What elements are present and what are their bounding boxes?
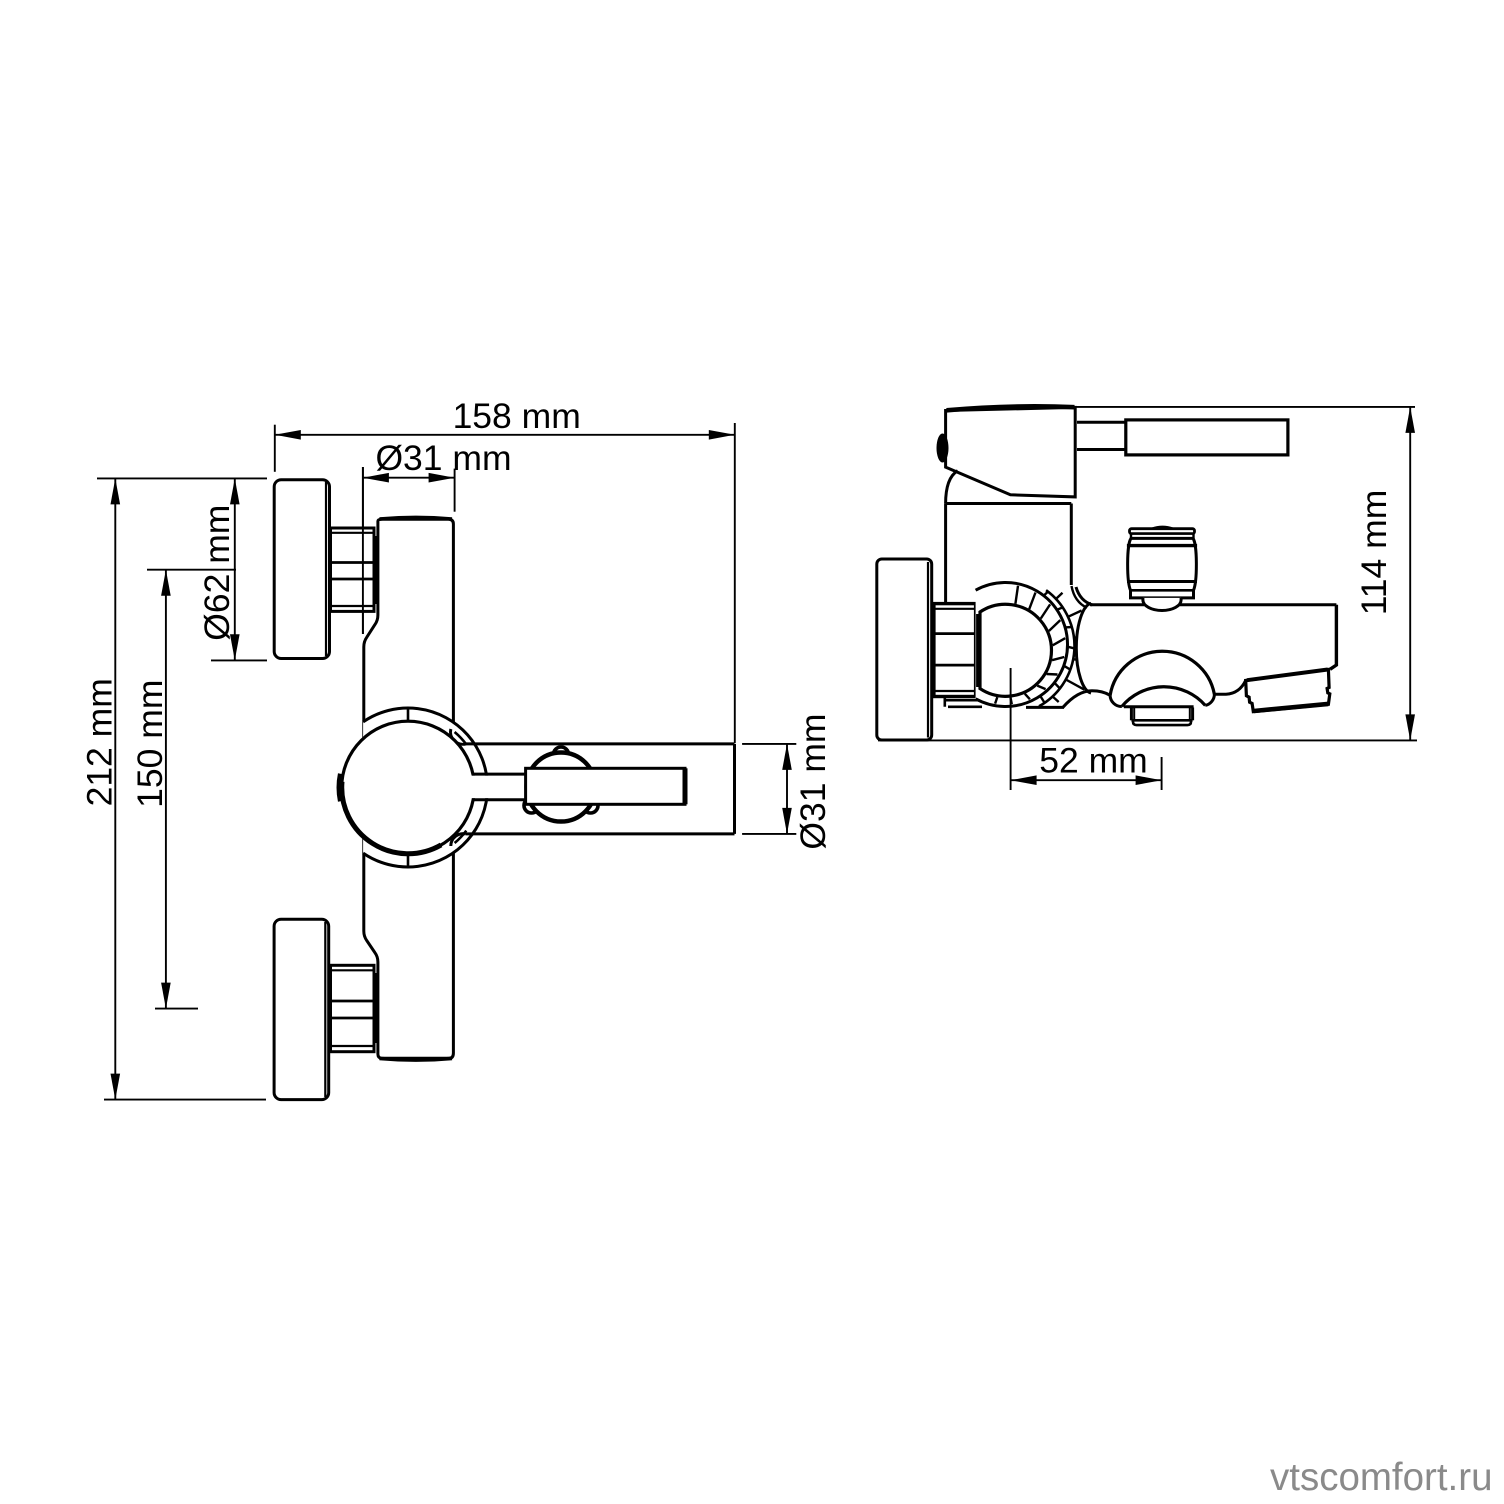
svg-text:158 mm: 158 mm xyxy=(453,396,581,436)
svg-text:114 mm: 114 mm xyxy=(1354,490,1394,616)
svg-text:52 mm: 52 mm xyxy=(1039,741,1148,781)
svg-text:212 mm: 212 mm xyxy=(80,678,120,806)
svg-text:vtscomfort.ru: vtscomfort.ru xyxy=(1270,1456,1492,1499)
svg-text:150 mm: 150 mm xyxy=(130,680,170,808)
svg-text:Ø31 mm: Ø31 mm xyxy=(375,438,511,478)
svg-text:Ø31 mm: Ø31 mm xyxy=(793,714,833,850)
svg-text:Ø62 mm: Ø62 mm xyxy=(197,505,237,641)
